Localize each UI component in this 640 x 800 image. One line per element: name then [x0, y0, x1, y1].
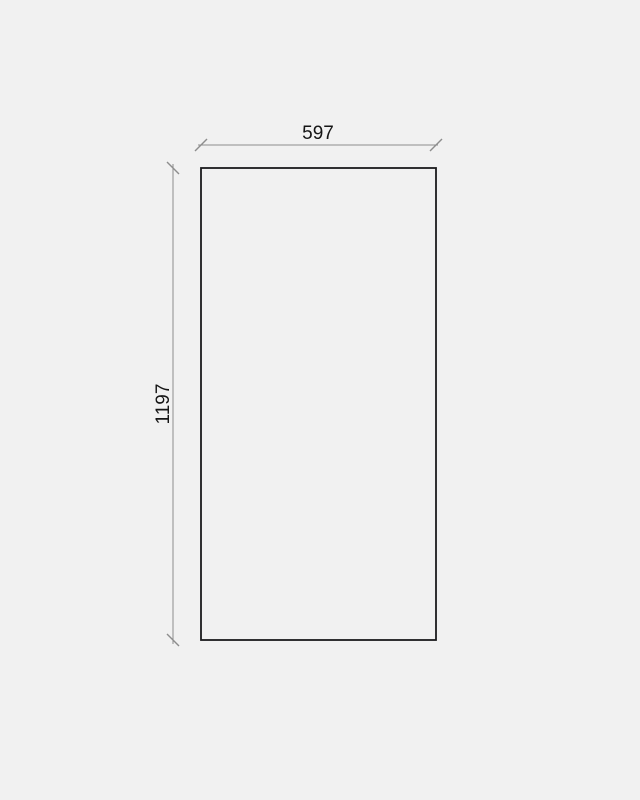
height-dimension: 1197: [153, 162, 179, 646]
width-dimension-label: 597: [302, 123, 334, 144]
panel-outline: [201, 168, 436, 640]
height-dimension-label: 1197: [153, 384, 174, 425]
dimension-drawing: 597 1197: [0, 0, 640, 800]
width-dimension: 597: [195, 123, 442, 151]
drawing-canvas: 597 1197: [0, 0, 640, 800]
